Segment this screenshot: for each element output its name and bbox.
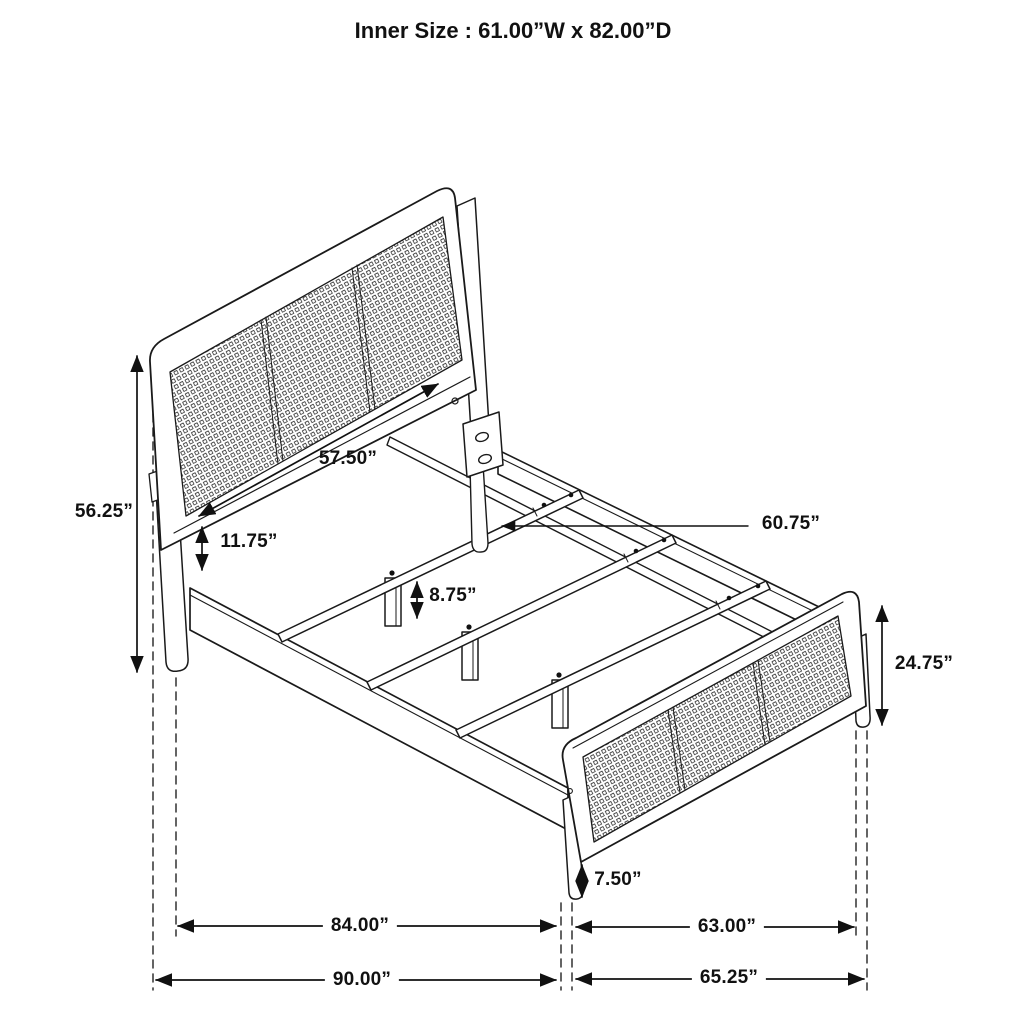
dim-slat-length: 60.75” xyxy=(762,513,820,535)
dim-overall-width: 65.25” xyxy=(692,967,766,989)
dim-footboard-height: 24.75” xyxy=(895,653,953,675)
mounting-bracket xyxy=(463,412,503,477)
dim-rail-gap: 11.75” xyxy=(220,531,277,553)
bed-line-drawing xyxy=(0,0,1024,1024)
dim-overall-length: 90.00” xyxy=(325,969,399,991)
dim-footboard-width: 63.00” xyxy=(690,916,764,938)
inner-size-title: Inner Size : 61.00”W x 82.00”D xyxy=(355,18,672,44)
dim-frame-inner-length: 84.00” xyxy=(323,915,397,937)
dim-slat-leg-height: 8.75” xyxy=(429,585,476,607)
dim-footboard-leg-height: 7.50” xyxy=(594,869,641,891)
dim-headboard-height: 56.25” xyxy=(75,501,133,523)
bed-dimension-diagram: Inner Size : 61.00”W x 82.00”D 56.25” 57… xyxy=(0,0,1024,1024)
center-support-rail xyxy=(387,437,800,654)
footboard xyxy=(563,592,871,899)
dim-headboard-width: 57.50” xyxy=(319,448,377,470)
